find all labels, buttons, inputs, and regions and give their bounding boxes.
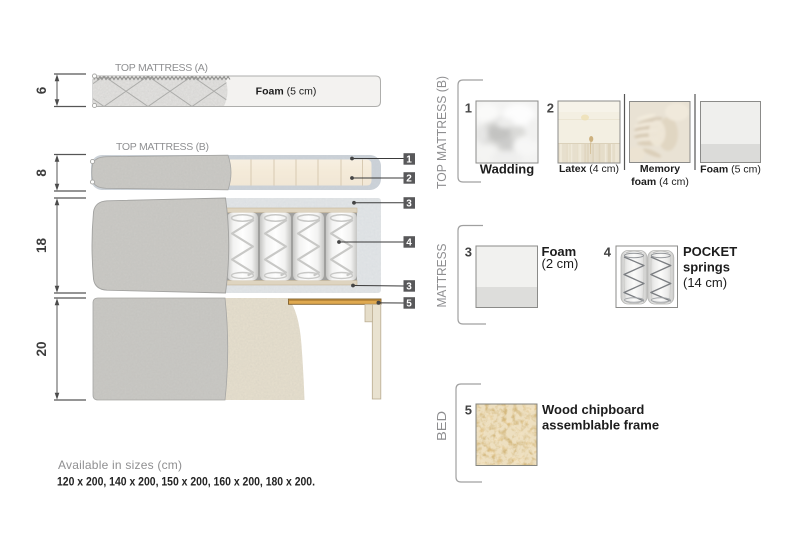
svg-text:1: 1 — [406, 155, 412, 166]
svg-text:Wood chipboard: Wood chipboard — [542, 402, 644, 417]
svg-text:foam (4 cm): foam (4 cm) — [631, 176, 689, 188]
svg-text:Foam (5 cm): Foam (5 cm) — [700, 164, 761, 176]
svg-text:120 x 200, 140 x 200, 150 x 20: 120 x 200, 140 x 200, 150 x 200, 160 x 2… — [57, 477, 315, 489]
svg-text:4: 4 — [604, 245, 612, 260]
svg-text:5: 5 — [465, 403, 472, 418]
svg-text:MATTRESS: MATTRESS — [434, 243, 449, 307]
svg-text:TOP MATTRESS (A): TOP MATTRESS (A) — [115, 62, 208, 74]
svg-text:Latex (4 cm): Latex (4 cm) — [559, 163, 619, 175]
svg-text:20: 20 — [34, 341, 49, 356]
svg-text:TOP MATTRESS (B): TOP MATTRESS (B) — [116, 141, 209, 153]
svg-text:Available in sizes (cm): Available in sizes (cm) — [58, 458, 182, 472]
svg-text:2: 2 — [406, 174, 412, 185]
svg-text:2: 2 — [547, 101, 554, 116]
svg-text:6: 6 — [34, 86, 49, 94]
svg-text:8: 8 — [34, 169, 49, 177]
svg-text:5: 5 — [406, 299, 412, 310]
svg-text:Wadding: Wadding — [480, 162, 534, 177]
svg-text:3: 3 — [406, 199, 412, 210]
svg-text:(14 cm): (14 cm) — [683, 275, 727, 290]
svg-text:assemblable frame: assemblable frame — [542, 418, 659, 433]
svg-text:BED: BED — [434, 411, 449, 441]
svg-text:1: 1 — [465, 101, 472, 116]
svg-text:Foam (5 cm): Foam (5 cm) — [256, 86, 317, 98]
svg-text:4: 4 — [406, 238, 412, 249]
svg-text:18: 18 — [34, 238, 49, 254]
svg-text:springs: springs — [683, 260, 730, 275]
svg-text:TOP MATTRESS (B): TOP MATTRESS (B) — [434, 76, 449, 189]
svg-text:(2 cm): (2 cm) — [542, 256, 579, 271]
svg-text:3: 3 — [406, 282, 412, 293]
svg-text:3: 3 — [465, 245, 472, 260]
svg-text:POCKET: POCKET — [683, 244, 737, 259]
svg-text:Memory: Memory — [640, 163, 680, 175]
